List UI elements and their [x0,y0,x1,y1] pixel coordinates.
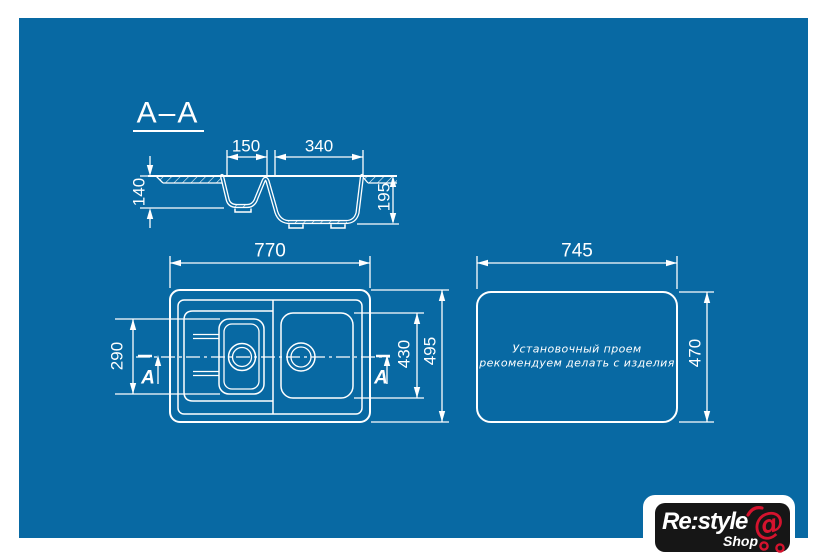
small-bowl-bottom-hatch [231,205,252,207]
dim-290-label: 290 [108,342,127,370]
dim-small-bowl-width: 150 [227,137,267,176]
large-bowl-outline [281,313,353,398]
plan-view: A A 770 290 430 [108,241,450,423]
dim-745-label: 745 [561,241,593,262]
bowl-feet [235,209,345,229]
cutout-note-line1: Установочный проем [512,343,641,356]
section-title: A–A [137,97,200,130]
section-letter-left: A [140,368,155,389]
dim-470-label: 470 [686,339,705,367]
restyle-shop-logo: Re:style Shop @ [643,495,795,555]
at-symbol: @ [751,504,788,545]
dim-340-label: 340 [305,137,333,156]
dim-770-label: 770 [254,241,286,262]
large-bowl-bottom-hatch [288,221,347,223]
dim-140-label: 140 [130,178,149,206]
drainboard-ribs [193,335,219,376]
dim-cutout-width: 470 [679,292,714,422]
section-marker-right: A [373,355,390,389]
section-view: A–A 150 [130,97,400,229]
cutout-note-line2: рекомендуем делать с изделия [478,357,675,370]
section-bowl-profile [222,176,362,223]
section-marker-left: A [138,355,161,389]
sink-technical-drawing: A–A 150 [0,0,830,560]
cart-wheel-right [776,544,783,551]
dim-495-label: 495 [421,337,440,365]
rim-hatch-left [156,176,222,183]
dim-right-depth: 195 [357,176,399,224]
cart-at-icon: @ [743,503,791,555]
cart-wheel-left [760,542,767,549]
dim-left-depth: 140 [130,156,225,228]
dim-overall-length: 770 [170,241,370,289]
dim-430-label: 430 [395,340,414,368]
section-letter-right: A [373,368,388,389]
logo-plate: Re:style Shop @ [655,503,790,552]
dim-150-label: 150 [232,137,260,156]
dim-cutout-length: 745 [477,241,677,290]
dim-195-label: 195 [375,183,394,211]
logo-brand-text: Re:style [662,508,747,536]
sink-outer-outline [170,290,370,422]
cutout-view: Установочный проем рекомендуем делать с … [477,241,714,423]
dim-large-bowl-width: 340 [275,137,363,176]
